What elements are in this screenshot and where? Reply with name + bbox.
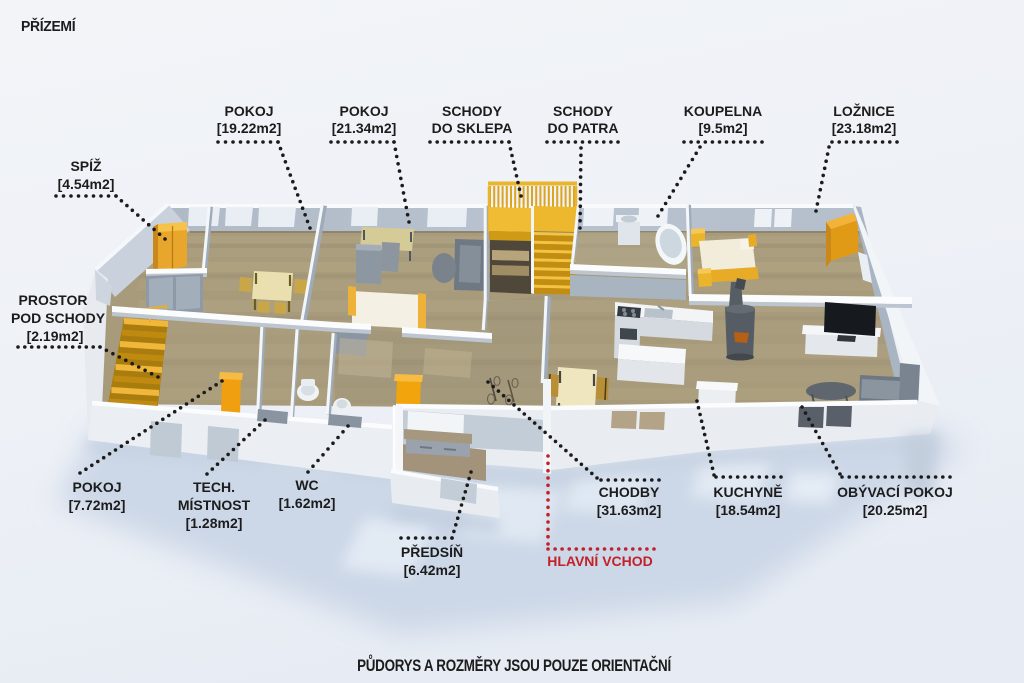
svg-text:[1.28m2]: [1.28m2] — [186, 515, 243, 531]
svg-text:PŘÍZEMÍ: PŘÍZEMÍ — [21, 17, 77, 36]
svg-text:DO SKLEPA: DO SKLEPA — [432, 120, 513, 136]
svg-text:[19.22m2]: [19.22m2] — [217, 120, 282, 136]
svg-text:[2.19m2]: [2.19m2] — [27, 328, 84, 344]
svg-text:TECH.: TECH. — [193, 479, 235, 495]
svg-text:[7.72m2]: [7.72m2] — [69, 497, 126, 513]
svg-text:DO PATRA: DO PATRA — [547, 120, 618, 136]
svg-text:[4.54m2]: [4.54m2] — [58, 176, 115, 192]
svg-text:[23.18m2]: [23.18m2] — [832, 120, 897, 136]
svg-text:PROSTOR: PROSTOR — [19, 292, 88, 308]
svg-text:CHODBY: CHODBY — [599, 484, 660, 500]
svg-text:HLAVNÍ VCHOD: HLAVNÍ VCHOD — [547, 553, 653, 569]
svg-text:[18.54m2]: [18.54m2] — [716, 502, 781, 518]
svg-text:SCHODY: SCHODY — [442, 103, 503, 119]
svg-text:MÍSTNOST: MÍSTNOST — [178, 497, 251, 513]
svg-text:WC: WC — [295, 477, 318, 493]
svg-text:[1.62m2]: [1.62m2] — [279, 495, 336, 511]
svg-text:SCHODY: SCHODY — [553, 103, 614, 119]
svg-text:PŘEDSÍŇ: PŘEDSÍŇ — [401, 543, 463, 560]
svg-text:[6.42m2]: [6.42m2] — [404, 562, 461, 578]
svg-text:POKOJ: POKOJ — [224, 103, 273, 119]
svg-text:PŮDORYS A ROZMĚRY JSOU POUZE O: PŮDORYS A ROZMĚRY JSOU POUZE ORIENTAČNÍ — [357, 654, 672, 675]
svg-text:[21.34m2]: [21.34m2] — [332, 120, 397, 136]
svg-text:OBÝVACÍ POKOJ: OBÝVACÍ POKOJ — [837, 483, 953, 500]
svg-text:KOUPELNA: KOUPELNA — [684, 103, 763, 119]
svg-text:POKOJ: POKOJ — [72, 479, 121, 495]
svg-text:[31.63m2]: [31.63m2] — [597, 502, 662, 518]
svg-text:SPÍŽ: SPÍŽ — [70, 157, 102, 174]
svg-text:[20.25m2]: [20.25m2] — [863, 502, 928, 518]
svg-text:[9.5m2]: [9.5m2] — [698, 120, 747, 136]
svg-text:LOŽNICE: LOŽNICE — [833, 102, 894, 119]
svg-text:POD SCHODY: POD SCHODY — [11, 310, 106, 326]
svg-text:POKOJ: POKOJ — [339, 103, 388, 119]
svg-text:KUCHYNĚ: KUCHYNĚ — [713, 483, 782, 500]
